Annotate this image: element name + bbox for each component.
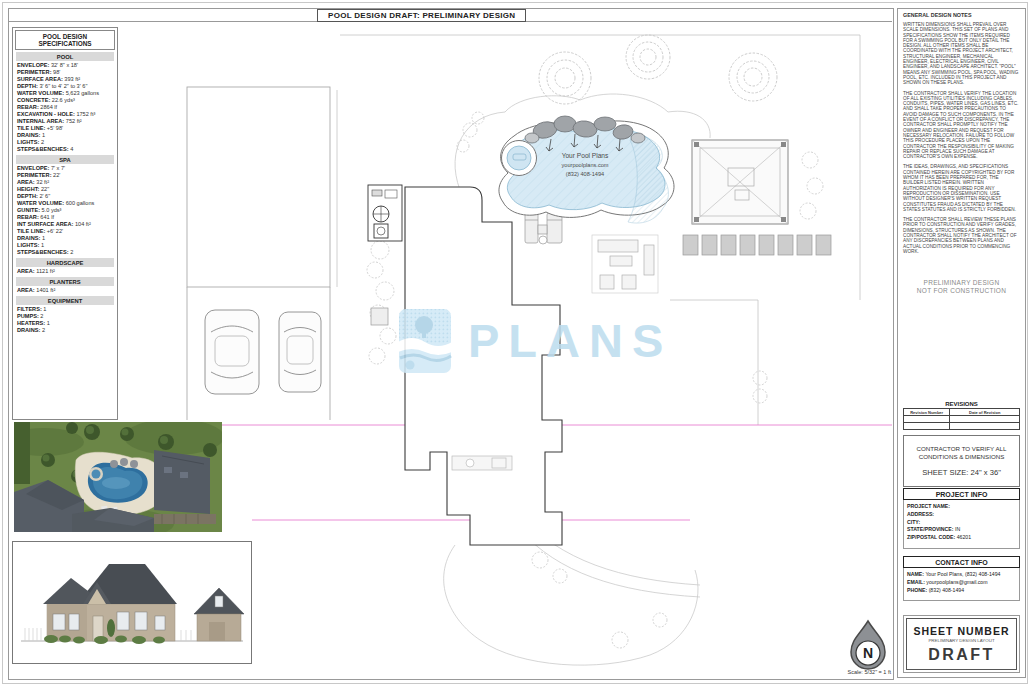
info-field: CITY:: [907, 519, 1016, 527]
notes-paragraphs: WRITTEN DIMENSIONS SHALL PREVAIL OVER SC…: [903, 22, 1020, 254]
spec-rows: ENVELOPE: 7' x 7'PERIMETER: 22'AREA: 32 …: [13, 165, 117, 256]
pool-label: Your Pool Plans yourpoolplans.com (832) …: [562, 152, 610, 177]
spec-row: WATER VOLUME: 5,623 gallons: [13, 90, 117, 97]
lounge-chairs: [525, 213, 562, 244]
spec-section-pool: POOL ENVELOPE: 32' 8" x 18'PERIMETER: 98…: [13, 52, 117, 153]
revisions-col-number: Revision Number: [904, 409, 950, 416]
spa: [502, 141, 537, 176]
svg-text:yourpoolplans.com: yourpoolplans.com: [562, 162, 609, 168]
aerial-render-image: [14, 422, 222, 532]
info-field: PHONE: (832) 408-1494: [907, 587, 1016, 595]
spec-row: DEPTH: 3' 6" to 4' 2" to 3' 6": [13, 83, 117, 90]
spec-row: ENVELOPE: 32' 8" x 18': [13, 62, 117, 69]
revision-row: [904, 423, 1020, 430]
spec-section-equipment: EQUIPMENT FILTERS: 1PUMPS: 2HEATERS: 1DR…: [13, 296, 117, 334]
spec-row: PUMPS: 2: [13, 313, 117, 320]
note-paragraph: WRITTEN DIMENSIONS SHALL PREVAIL OVER SC…: [903, 22, 1020, 86]
equipment-pad: [368, 185, 402, 241]
spec-rows: AREA: 1401 ft²: [13, 287, 117, 294]
spec-rows: AREA: 1121 ft²: [13, 268, 117, 275]
spec-row: AREA: 1121 ft²: [13, 268, 117, 275]
elevation-image: [12, 541, 252, 664]
watermark-logo-icon: [398, 308, 452, 374]
project-info-fields: PROJECT NAME: ADDRESS: CITY: STATE/PROVI…: [903, 500, 1020, 549]
pergola: [692, 140, 788, 224]
note-paragraph: THE CONTRACTOR SHALL REVIEW THESE PLANS …: [903, 217, 1020, 254]
verify-line: CONDITIONS & DIMENSIONS: [919, 453, 1005, 460]
spec-row: HEATERS: 1: [13, 320, 117, 327]
sheet-title: POOL DESIGN DRAFT: PRELIMINARY DESIGN: [317, 9, 526, 22]
car-1: [205, 310, 259, 394]
general-design-notes: GENERAL DESIGN NOTES WRITTEN DIMENSIONS …: [903, 12, 1020, 259]
scale-note: Scale: 5/32" = 1 ft: [795, 669, 891, 675]
spec-section-header: POOL: [16, 52, 114, 61]
preliminary-stamp: PRELIMINARY DESIGN NOT FOR CONSTRUCTION: [903, 279, 1020, 295]
spec-section-header: PLANTERS: [16, 277, 114, 286]
spec-row: PERIMETER: 22': [13, 172, 117, 179]
spec-section-planters: PLANTERS AREA: 1401 ft²: [13, 277, 117, 294]
spec-row: LIGHTS: 2: [13, 139, 117, 146]
spec-row: LIGHTS: 1: [13, 242, 117, 249]
pool-design-sheet: POOL DESIGN DRAFT: PRELIMINARY DESIGN: [0, 0, 1030, 686]
spec-row: SURFACE AREA: 393 ft²: [13, 76, 117, 83]
spec-section-spa: SPA ENVELOPE: 7' x 7'PERIMETER: 22'AREA:…: [13, 155, 117, 256]
spec-row: EXCAVATION - HOLE: 1752 ft³: [13, 111, 117, 118]
sheet-size: SHEET SIZE: 24" x 36": [922, 468, 1001, 477]
sheet-number-value: DRAFT: [928, 646, 995, 664]
verify-line: CONTRACTOR TO VERIFY ALL: [917, 445, 1007, 452]
spec-row: STEPS&BENCHES: 2: [13, 249, 117, 256]
svg-text:N: N: [863, 645, 873, 661]
outdoor-kitchen: [452, 456, 512, 470]
spec-row: DRAINS: 1: [13, 132, 117, 139]
project-info-section: PROJECT INFO PROJECT NAME: ADDRESS: CITY…: [903, 488, 1020, 549]
spec-row: WATER VOLUME: 600 gallons: [13, 200, 117, 207]
revision-row: [904, 416, 1020, 423]
spec-section-header: HARDSCAPE: [16, 258, 114, 267]
stepping-pad: [371, 308, 388, 325]
spec-row: TILE LINE: +6' 22': [13, 228, 117, 235]
spec-rows: FILTERS: 1PUMPS: 2HEATERS: 1DRAINS: 2: [13, 306, 117, 334]
specs-title: POOL DESIGN SPECIFICATIONS: [15, 30, 115, 50]
info-field: STATE/PROVINCE: IN: [907, 526, 1016, 534]
title-block-sidebar: GENERAL DESIGN NOTES WRITTEN DIMENSIONS …: [897, 8, 1026, 678]
spec-section-header: SPA: [16, 155, 114, 164]
watermark: PLANS: [398, 308, 672, 374]
spec-row: TILE LINE: +5' 98': [13, 125, 117, 132]
sheet-number-title: SHEET NUMBER: [913, 625, 1009, 637]
spec-row: AREA: 1401 ft²: [13, 287, 117, 294]
revisions-section: REVISIONS Revision Number Date of Revisi…: [903, 401, 1020, 430]
spec-row: DRAINS: 2: [13, 327, 117, 334]
spec-row: AREA: 32 ft²: [13, 179, 117, 186]
patio-furniture-set: [592, 235, 658, 293]
info-field: ADDRESS:: [907, 511, 1016, 519]
spec-row: PERIMETER: 98': [13, 69, 117, 76]
north-arrow-icon: N: [845, 618, 891, 676]
info-field: PROJECT NAME:: [907, 503, 1016, 511]
svg-text:(832) 408-1494: (832) 408-1494: [566, 171, 604, 177]
spec-row: ENVELOPE: 7' x 7': [13, 165, 117, 172]
verify-box: CONTRACTOR TO VERIFY ALL CONDITIONS & DI…: [903, 435, 1020, 487]
note-paragraph: THE IDEAS, DRAWINGS, AND SPECIFICATIONS …: [903, 164, 1020, 212]
paver-band: [683, 235, 831, 255]
watermark-text: PLANS: [468, 308, 672, 374]
stamp-line: PRELIMINARY DESIGN: [903, 279, 1020, 287]
sheet-number-subtitle: PRELIMINARY DESIGN LAYOUT: [928, 638, 994, 643]
pool: Your Pool Plans yourpoolplans.com (832) …: [499, 116, 674, 223]
spec-row: DRAINS: 1: [13, 235, 117, 242]
spec-row: GUNITE: 5.0 yds³: [13, 207, 117, 214]
car-2: [279, 312, 321, 392]
sheet-number-section: SHEET NUMBER PRELIMINARY DESIGN LAYOUT D…: [903, 615, 1020, 673]
pool-design-specifications-panel: POOL DESIGN SPECIFICATIONS POOL ENVELOPE…: [12, 27, 118, 420]
spec-rows: ENVELOPE: 32' 8" x 18'PERIMETER: 98'SURF…: [13, 62, 117, 153]
project-info-title: PROJECT INFO: [903, 488, 1020, 500]
spec-section-header: EQUIPMENT: [16, 296, 114, 305]
info-field: EMAIL: yourpoolplans@gmail.com: [907, 579, 1016, 587]
info-field: NAME: Your Pool Plans, (832) 408-1494: [907, 571, 1016, 579]
revisions-title: REVISIONS: [903, 401, 1020, 407]
contact-info-title: CONTACT INFO: [903, 556, 1020, 568]
spec-section-hardscape: HARDSCAPE AREA: 1121 ft²: [13, 258, 117, 275]
notes-title: GENERAL DESIGN NOTES: [903, 12, 1020, 18]
stamp-line: NOT FOR CONSTRUCTION: [903, 287, 1020, 295]
svg-text:Your Pool Plans: Your Pool Plans: [562, 152, 609, 159]
trees: [539, 35, 777, 104]
info-field: ZIP/POSTAL CODE: 46201: [907, 534, 1016, 542]
revisions-col-date: Date of Revision: [950, 409, 1020, 416]
spec-row: REBAR: 641 lf: [13, 214, 117, 221]
spec-row: CONCRETE: 22.6 yds³: [13, 97, 117, 104]
revisions-table: Revision Number Date of Revision: [903, 408, 1020, 430]
spec-row: REBAR: 2864 lf: [13, 104, 117, 111]
note-paragraph: THE CONTRACTOR SHALL VERIFY THE LOCATION…: [903, 91, 1020, 160]
contact-info-section: CONTACT INFO NAME: Your Pool Plans, (832…: [903, 556, 1020, 601]
spec-row: HEIGHT: 22": [13, 186, 117, 193]
spec-row: INT SURFACE AREA: 104 ft²: [13, 221, 117, 228]
spec-row: STEPS&BENCHES: 4: [13, 146, 117, 153]
contact-info-fields: NAME: Your Pool Plans, (832) 408-1494EMA…: [903, 568, 1020, 601]
spec-row: DEPTH: 2' 6": [13, 193, 117, 200]
spec-row: INTERNAL AREA: 752 ft²: [13, 118, 117, 125]
spec-row: FILTERS: 1: [13, 306, 117, 313]
